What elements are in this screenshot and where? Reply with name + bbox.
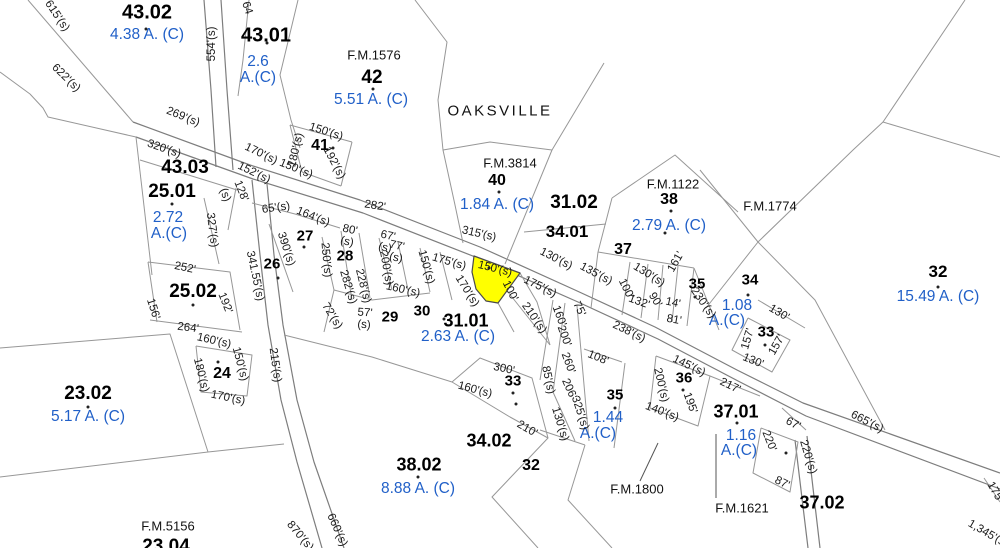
parcel-centroid-dot	[332, 147, 335, 150]
parcel-centroid-dot	[372, 88, 375, 91]
dimension-label: (s)	[339, 235, 355, 250]
place-name-label: OAKSVILLE	[447, 103, 552, 120]
dimension-label: 554'(s)	[206, 27, 218, 62]
parcel-centroid-dot	[694, 296, 697, 299]
road-edge-line	[204, 0, 216, 167]
parcel-number-label: 37	[614, 241, 632, 259]
acreage-label: 5.17 A. (C)	[51, 408, 125, 426]
parcel-boundary-line	[0, 444, 284, 477]
parcel-number-label: 26	[264, 256, 281, 273]
fm-leader-line	[640, 443, 658, 481]
fm-road-label: F.M.1576	[347, 48, 400, 63]
parcel-boundary-line	[568, 445, 612, 548]
parcel-centroid-dot	[512, 392, 515, 395]
acreage-label: 2.63 A. (C)	[421, 328, 495, 346]
acreage-label: A.(C)	[151, 225, 187, 243]
parcel-number-label: 27	[297, 228, 314, 245]
parcel-number-label: 34	[742, 272, 759, 289]
parcel-centroid-dot	[217, 361, 220, 364]
parcel-number-label: 25.02	[169, 281, 217, 303]
parcel-number-label: 37.02	[799, 493, 844, 514]
parcel-centroid-dot	[266, 42, 269, 45]
parcel-boundary-line	[706, 0, 965, 308]
parcel-boundary-line	[136, 137, 152, 275]
fm-road-label: F.M.5156	[141, 519, 194, 534]
parcel-number-label: 32	[929, 262, 948, 282]
parcel-number-label: 43.03	[161, 157, 209, 179]
parcel-number-label: 28	[337, 248, 354, 265]
parcel-number-label: 40	[488, 172, 506, 190]
parcel-centroid-dot	[303, 246, 306, 249]
dimension-label: 57'	[357, 306, 373, 319]
fm-road-label: F.M.1621	[715, 501, 768, 516]
parcel-number-label: 23.02	[64, 383, 112, 405]
dimension-label: 81'	[666, 313, 683, 327]
road-edge-line	[221, 0, 233, 170]
fm-road-label: F.M.1774	[743, 199, 796, 214]
fm-road-label: F.M.1122	[647, 177, 700, 192]
parcel-number-label: 38.02	[396, 455, 441, 476]
parcel-centroid-dot	[417, 476, 420, 479]
acreage-label: 8.88 A. (C)	[381, 480, 455, 498]
parcel-centroid-dot	[498, 191, 501, 194]
parcel-centroid-dot	[277, 277, 280, 280]
acreage-label: 5.51 A. (C)	[334, 91, 408, 109]
parcel-number-label: 34.01	[546, 222, 589, 242]
parcel-boundary-line	[415, 0, 463, 243]
parcel-centroid-dot	[488, 267, 491, 270]
parcel-boundary-line	[492, 438, 548, 548]
parcel-boundary-line	[28, 0, 133, 122]
dimension-label: (s)	[357, 319, 371, 332]
parcel-number-label: 42	[361, 67, 382, 89]
map-canvas[interactable]: OAKSVILLE 43.0243.0142414043.0325.0131.0…	[0, 0, 1000, 548]
dimension-label: 264'	[177, 321, 200, 336]
fm-road-label: F.M.1800	[610, 482, 663, 497]
parcel-number-label: 30	[414, 303, 431, 320]
acreage-label: A.(C)	[240, 69, 276, 87]
parcel-centroid-dot	[764, 344, 767, 347]
parcel-centroid-dot	[145, 28, 148, 31]
parcel-centroid-dot	[443, 318, 446, 321]
acreage-label: 1.84 A. (C)	[460, 196, 534, 214]
parcel-centroid-dot	[171, 203, 174, 206]
parcel-number-label: 32	[522, 457, 540, 475]
fm-road-label: F.M.3814	[483, 156, 536, 171]
acreage-label: 2.79 A. (C)	[632, 217, 706, 235]
parcel-centroid-dot	[87, 406, 90, 409]
parcel-number-label: 37.01	[713, 402, 758, 423]
acreage-label: A.(C)	[721, 442, 757, 460]
parcel-boundary-line	[341, 142, 352, 186]
parcel-number-label: 23.04	[142, 536, 190, 548]
parcel-centroid-dot	[736, 422, 739, 425]
parcel-number-label: 35	[607, 387, 624, 404]
parcel-number-label: 24	[213, 365, 231, 383]
parcel-number-label: 43.02	[122, 2, 172, 25]
acreage-label: 15.49 A. (C)	[897, 288, 980, 306]
parcel-number-label: 34.02	[466, 431, 511, 452]
parcel-centroid-dot	[664, 232, 667, 235]
parcel-number-label: 31.02	[550, 192, 598, 214]
parcel-centroid-dot	[785, 452, 788, 455]
parcel-centroid-dot	[747, 294, 750, 297]
parcel-number-label: 33	[758, 324, 775, 341]
parcel-centroid-dot	[192, 304, 195, 307]
parcel-centroid-dot	[682, 389, 685, 392]
parcel-centroid-dot	[937, 286, 940, 289]
parcel-number-label: 29	[382, 309, 399, 326]
parcel-centroid-dot	[515, 403, 518, 406]
parcel-boundary-line	[883, 122, 1000, 157]
parcel-number-label: 38	[660, 191, 678, 209]
parcel-centroid-dot	[614, 407, 617, 410]
parcel-boundary-line	[498, 303, 514, 332]
parcel-boundary-line	[443, 142, 552, 150]
parcel-number-label: 25.01	[148, 181, 196, 203]
parcel-centroid-dot	[670, 210, 673, 213]
